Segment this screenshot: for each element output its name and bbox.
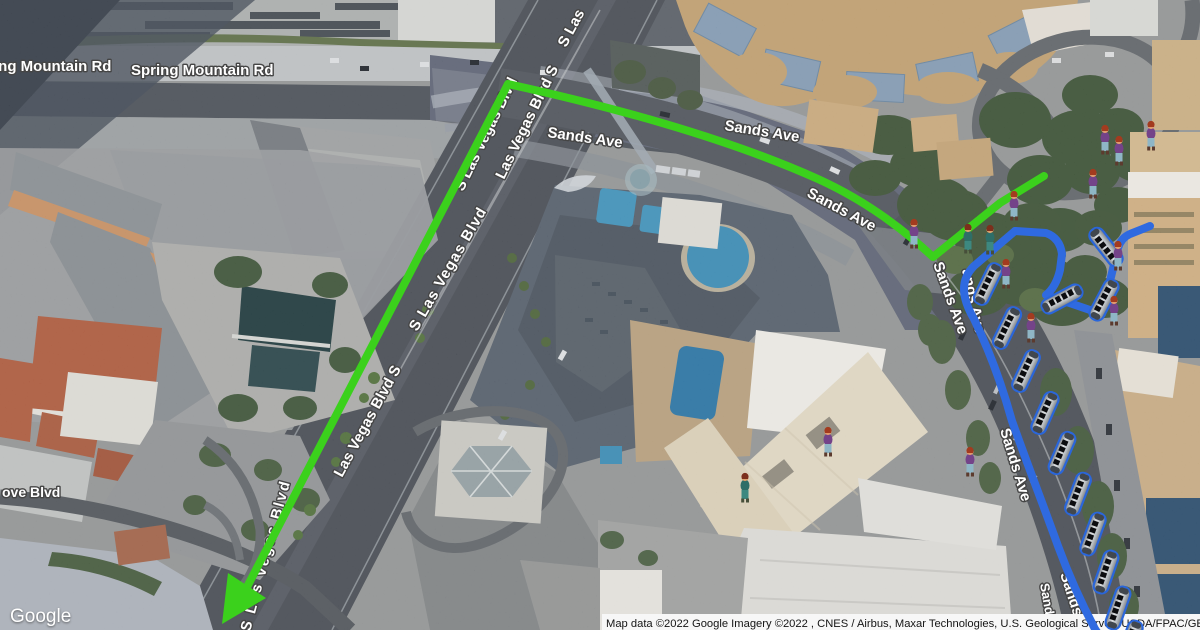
svg-text:ing Mountain Rd: ing Mountain Rd (0, 58, 111, 75)
svg-text:ove Blvd: ove Blvd (2, 484, 60, 500)
svg-text:Spring Mountain Rd: Spring Mountain Rd (131, 62, 273, 79)
svg-text:Google: Google (10, 606, 71, 627)
